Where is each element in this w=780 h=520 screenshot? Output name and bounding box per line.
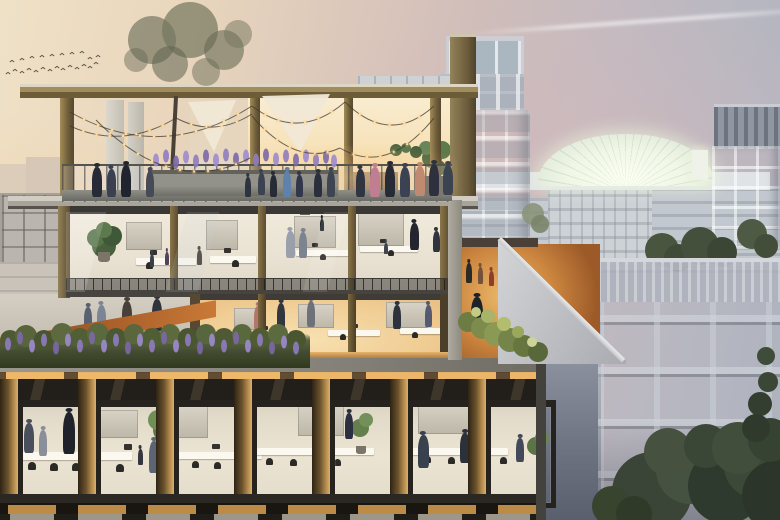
glass-reflection	[66, 212, 448, 292]
bulb-glow	[160, 123, 165, 128]
bulb-glow	[151, 134, 156, 139]
base-lit-cells	[0, 505, 545, 514]
bulb-glow	[81, 117, 86, 122]
terrace-planter	[148, 170, 338, 196]
foliage-blob	[224, 20, 252, 48]
bulb-glow	[147, 128, 152, 133]
foliage-blob	[124, 48, 148, 72]
bronze-fin	[0, 379, 18, 503]
foliage-blob	[128, 16, 176, 64]
light-bulb	[167, 135, 169, 137]
light-bulb	[148, 129, 150, 131]
bronze-fin	[468, 379, 486, 503]
annex-wall-strip	[448, 200, 462, 360]
lavender-tuft	[183, 151, 189, 164]
terrace-plant-pot	[424, 176, 444, 196]
light-bulb	[181, 133, 183, 135]
light-bulb	[82, 130, 84, 132]
foliage-blob	[162, 2, 218, 58]
rooftop-tree-trunk	[170, 96, 178, 174]
bronze-mullion	[348, 294, 356, 358]
green-roof-garden	[0, 330, 310, 368]
window-head-band	[196, 294, 448, 300]
light-bulb	[162, 124, 164, 126]
bulb-glow	[95, 123, 100, 128]
lavender-tuft	[163, 150, 169, 163]
light-bulb	[83, 118, 85, 120]
foliage-blob	[152, 46, 188, 82]
light-bulb	[125, 132, 127, 134]
lower-window-tops	[0, 514, 545, 520]
bronze-fin	[156, 379, 174, 503]
bulb-glow	[179, 132, 184, 137]
bulb-glow	[149, 159, 154, 164]
main-office-building	[0, 0, 780, 520]
light-bulb	[153, 135, 155, 137]
light-bulb	[95, 133, 97, 135]
foliage-blob	[204, 30, 244, 70]
architectural-rendering	[0, 0, 780, 520]
bronze-fin	[78, 379, 96, 503]
bronze-fin	[312, 379, 330, 503]
light-bulb	[151, 160, 153, 162]
bulb-glow	[94, 132, 99, 137]
building-right-edge	[536, 358, 546, 520]
pergola-beam	[20, 84, 478, 98]
light-bulb	[97, 124, 99, 126]
bronze-fin	[390, 379, 408, 503]
bronze-fin	[234, 379, 252, 503]
bulb-glow	[81, 129, 86, 134]
bulb-glow	[165, 134, 170, 139]
foliage-blob	[192, 58, 220, 86]
